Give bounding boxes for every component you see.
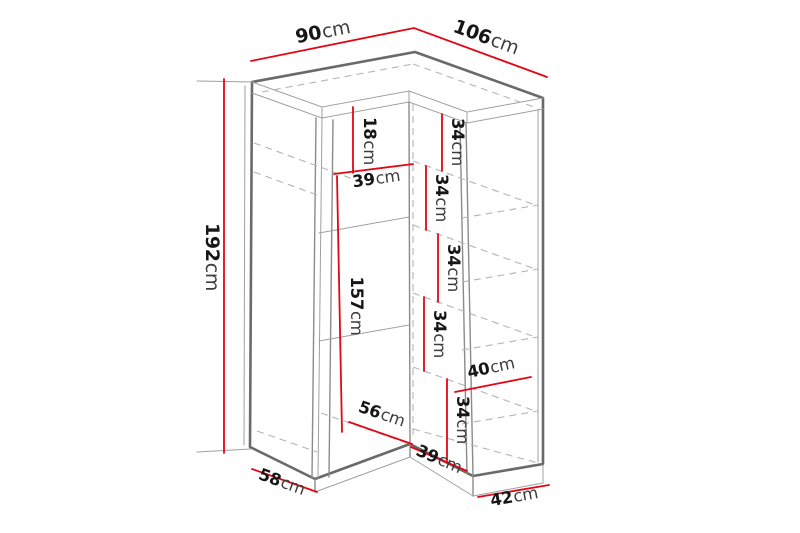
dimension-lines (224, 28, 549, 497)
top-board-surface-edges (252, 82, 543, 112)
dim-line-left-section-height (337, 176, 342, 432)
dim-line-right-shelf-depth (455, 377, 531, 392)
dim-label-base-depth-left: 58cm (256, 465, 308, 499)
dim-label-left-section-width: 39cm (351, 166, 401, 191)
wardrobe-dimension-diagram: 90cm 106cm 192cm 18cm 39cm 157cm 34cm 34… (0, 0, 800, 533)
dim-label-top-width-left: 90cm (294, 16, 352, 48)
dim-label-right-gap-2: 34cm (432, 174, 451, 222)
dim-label-right-gap-3: 34cm (444, 244, 463, 292)
dim-label-top-width-right: 106cm (450, 15, 522, 59)
dim-label-height: 192cm (201, 223, 223, 291)
dim-label-left-section-height: 157cm (347, 276, 366, 335)
dim-label-right-gap-1: 34cm (448, 118, 467, 166)
top-board-corner-edges (322, 91, 467, 123)
dim-label-base-depth-right: 42cm (489, 483, 539, 510)
dim-label-right-gap-4: 34cm (430, 310, 449, 358)
diagram-canvas: 90cm 106cm 192cm 18cm 39cm 157cm 34cm 34… (0, 0, 800, 533)
dim-label-top-shelf-gap: 18cm (360, 117, 379, 165)
dim-label-right-gap-5: 34cm (453, 396, 472, 444)
dim-label-bottom-inner-left: 56cm (356, 397, 407, 431)
dim-label-right-shelf-depth: 40cm (465, 353, 516, 382)
dim-label-bottom-inner-right: 39cm (413, 441, 465, 477)
hidden-edges (254, 64, 534, 452)
